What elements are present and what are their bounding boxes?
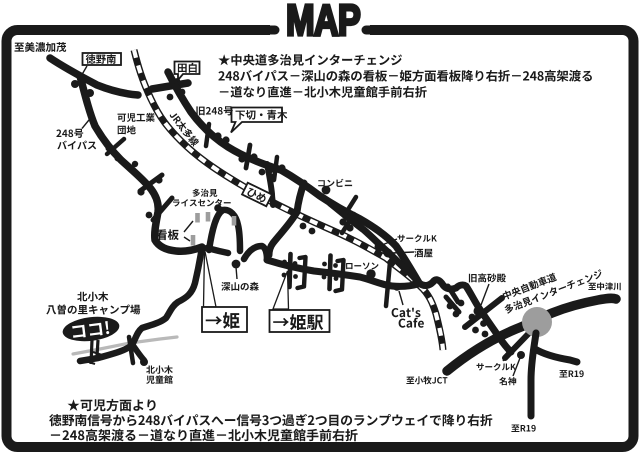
svg-text:MAP: MAP bbox=[286, 0, 360, 45]
